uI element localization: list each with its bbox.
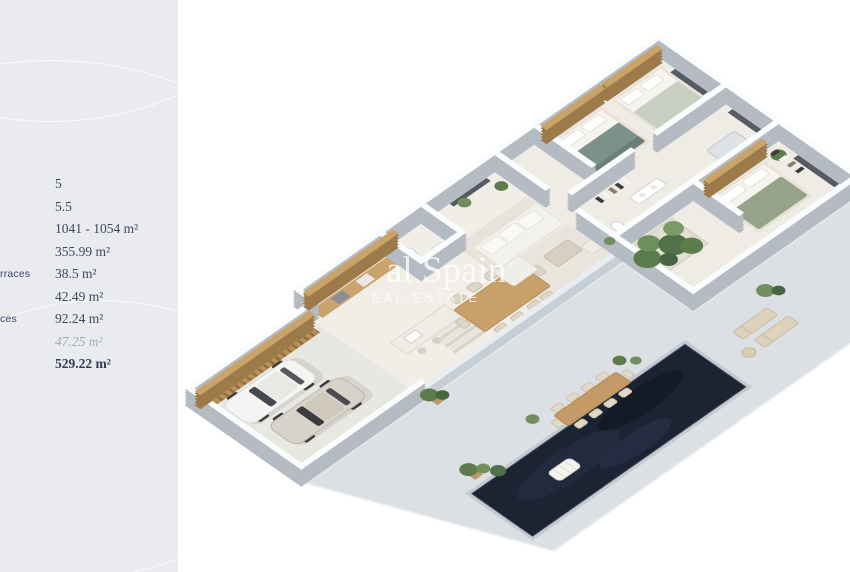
spec-value: 38.5 m² <box>55 266 97 282</box>
spec-row-total: 529.22 m² <box>0 356 178 370</box>
spec-value: 5 <box>55 176 62 192</box>
spec-value: 529.22 m² <box>55 356 111 372</box>
spec-value: 355.99 m² <box>55 244 110 260</box>
spec-value: 47.25 m² <box>55 334 103 350</box>
spec-row-bedrooms: 5 <box>0 176 178 190</box>
spec-row: ces 92.24 m² <box>0 311 178 325</box>
spec-row-bathrooms: 5.5 <box>0 199 178 213</box>
spec-value: 1041 - 1054 m² <box>55 221 138 237</box>
spec-row-terraces: rraces 38.5 m² <box>0 266 178 280</box>
spec-row: 42.49 m² <box>0 289 178 303</box>
spec-value: 42.49 m² <box>55 289 103 305</box>
spec-label: rraces <box>0 268 30 280</box>
spec-list: 5 5.5 1041 - 1054 m² 355.99 m² rraces 38… <box>0 176 178 379</box>
listing-page: 5 5.5 1041 - 1054 m² 355.99 m² rraces 38… <box>0 0 850 572</box>
spec-label: ces <box>0 313 17 325</box>
floor-plan-rendering <box>178 0 850 572</box>
spec-value: 92.24 m² <box>55 311 103 327</box>
floor-plan-area: al Spain EAL ESTATE <box>178 0 850 572</box>
sidebar-panel: 5 5.5 1041 - 1054 m² 355.99 m² rraces 38… <box>0 0 178 572</box>
spec-row-built: 355.99 m² <box>0 244 178 258</box>
spec-value: 5.5 <box>55 199 72 215</box>
spec-row: 47.25 m² <box>0 334 178 348</box>
spec-row-plot: 1041 - 1054 m² <box>0 221 178 235</box>
